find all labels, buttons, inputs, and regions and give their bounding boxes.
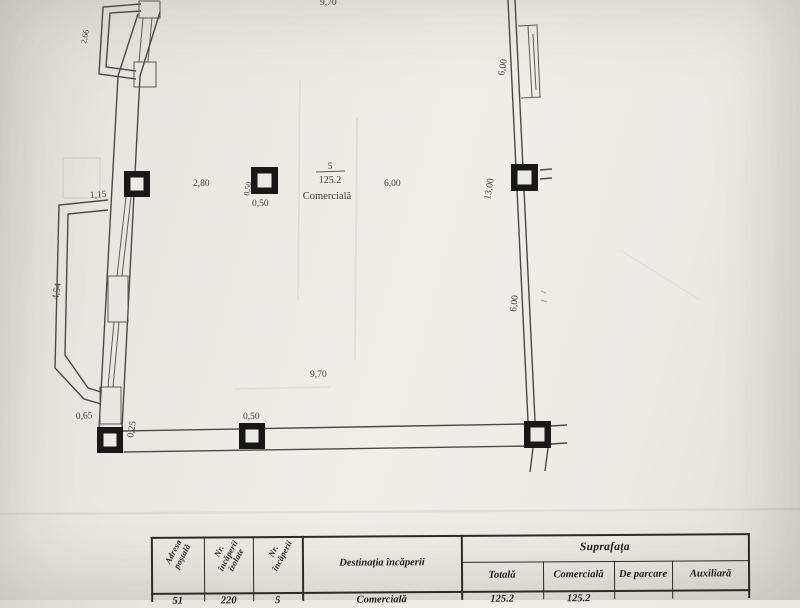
scanned-cadastral-plan-page: { "plan": { "room": { "number": "5", "ar… — [0, 0, 800, 600]
table-vline-2 — [253, 536, 255, 601]
row-totala: 125.2 — [461, 593, 543, 605]
row-nr-izolate: 220 — [204, 595, 253, 606]
suprafata-split-line — [461, 560, 750, 563]
header-comerciala: Comercială — [543, 569, 614, 580]
header-de-parcare: De parcare — [614, 569, 672, 580]
room-summary-table: Adresa poștală Nr. încăperii izolate Nr.… — [0, 0, 800, 603]
header-suprafata: Suprafața — [461, 540, 749, 554]
row-nr: 5 — [253, 595, 302, 606]
header-totala: Totală — [461, 569, 543, 581]
header-auxiliara: Auxiliară — [672, 568, 749, 579]
row-comerciala: 125.2 — [543, 593, 614, 604]
row-adresa: 51 — [151, 596, 204, 607]
header-destinatia: Destinația încăperii — [304, 557, 460, 569]
